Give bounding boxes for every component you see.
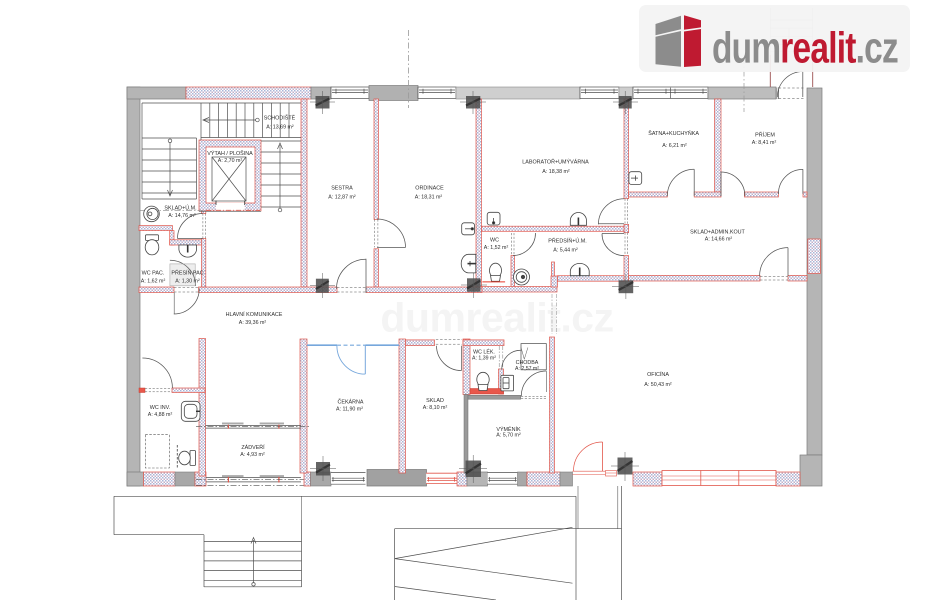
svg-text:A: 5,44 m²: A: 5,44 m² <box>553 248 578 254</box>
svg-text:A: 8,10 m²: A: 8,10 m² <box>423 405 448 411</box>
svg-text:A: 14,76 m²: A: 14,76 m² <box>168 213 196 219</box>
svg-text:dumrealit.cz: dumrealit.cz <box>380 295 613 341</box>
svg-text:WC PAC.: WC PAC. <box>142 271 165 277</box>
svg-text:SKLAD+ADMIN.KOUT: SKLAD+ADMIN.KOUT <box>690 229 745 235</box>
svg-text:A: 11,90 m²: A: 11,90 m² <box>336 407 363 413</box>
svg-text:OFICÍNA: OFICÍNA <box>647 371 669 378</box>
svg-text:VÝTAH / PLOŠINA: VÝTAH / PLOŠINA <box>207 150 253 157</box>
svg-text:A: 4,88 m²: A: 4,88 m² <box>148 412 173 418</box>
svg-text:A: 14,66 m²: A: 14,66 m² <box>705 237 733 243</box>
svg-text:A: 18,38 m²: A: 18,38 m² <box>542 169 570 175</box>
svg-text:WC INV.: WC INV. <box>150 405 170 411</box>
svg-text:A: 5,70 m²: A: 5,70 m² <box>496 432 521 438</box>
svg-text:SCHODIŠTĚ: SCHODIŠTĚ <box>264 114 296 122</box>
svg-text:A: 50,43 m²: A: 50,43 m² <box>644 382 672 388</box>
svg-text:SESTRA: SESTRA <box>331 185 353 191</box>
svg-text:PŘESÍŇ PAC: PŘESÍŇ PAC <box>171 269 203 277</box>
svg-text:A: 12,87 m²: A: 12,87 m² <box>328 195 356 201</box>
svg-text:A: 1,39 m²: A: 1,39 m² <box>472 356 496 362</box>
svg-text:A: 4,93 m²: A: 4,93 m² <box>240 452 265 458</box>
svg-text:HLAVNÍ KOMUNIKACE: HLAVNÍ KOMUNIKACE <box>226 311 283 318</box>
svg-text:WC: WC <box>490 238 499 244</box>
svg-text:A: 1,30 m²: A: 1,30 m² <box>175 278 200 284</box>
svg-text:dumrealit.cz: dumrealit.cz <box>712 24 898 72</box>
svg-text:LABORATOŘ+UMÝVÁRNA: LABORATOŘ+UMÝVÁRNA <box>522 158 589 166</box>
svg-text:A: 6,21 m²: A: 6,21 m² <box>662 143 687 149</box>
svg-text:A: 13,69 m²: A: 13,69 m² <box>266 125 294 131</box>
svg-text:A: 1,62 m²: A: 1,62 m² <box>141 278 166 284</box>
svg-text:ZÁDVEŘÍ: ZÁDVEŘÍ <box>241 443 265 451</box>
svg-text:ŠATNA+KUCHYŇKA: ŠATNA+KUCHYŇKA <box>648 130 699 137</box>
svg-text:A: 2,70 m²: A: 2,70 m² <box>218 158 243 164</box>
svg-text:A: 18,31 m²: A: 18,31 m² <box>415 195 443 201</box>
svg-text:A: 39,36 m²: A: 39,36 m² <box>239 320 267 326</box>
svg-text:SKLAD: SKLAD <box>426 398 444 404</box>
svg-text:SKLAD+Ú.M.: SKLAD+Ú.M. <box>164 205 196 212</box>
svg-text:A: 2,57 m²: A: 2,57 m² <box>515 366 539 372</box>
svg-text:WC LÉK.: WC LÉK. <box>473 348 495 355</box>
svg-text:ČEKÁRNA: ČEKÁRNA <box>337 399 363 406</box>
svg-text:PŘEDSÍŇ+Ú.M.: PŘEDSÍŇ+Ú.M. <box>548 237 587 245</box>
svg-text:A: 8,41 m²: A: 8,41 m² <box>752 140 777 146</box>
svg-text:ORDINACE: ORDINACE <box>415 185 444 191</box>
svg-text:PŘÍJEM: PŘÍJEM <box>755 131 775 139</box>
svg-text:A: 1,52 m²: A: 1,52 m² <box>484 245 509 251</box>
